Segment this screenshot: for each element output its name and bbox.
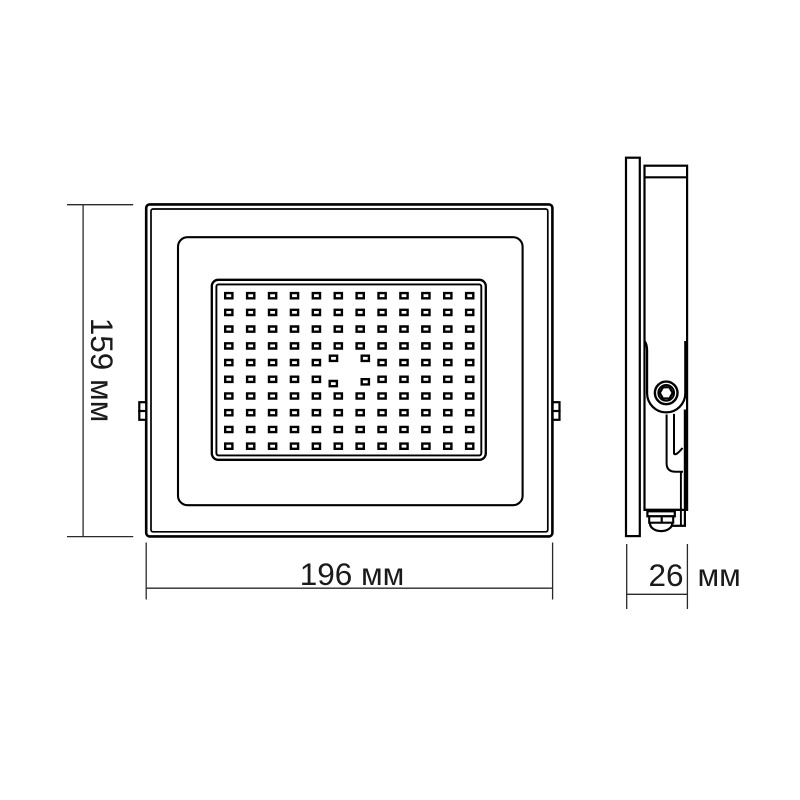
svg-text:196 мм: 196 мм (300, 556, 405, 592)
svg-text:мм: мм (698, 557, 741, 593)
svg-text:26: 26 (649, 557, 684, 593)
svg-text:159 мм: 159 мм (84, 318, 120, 423)
